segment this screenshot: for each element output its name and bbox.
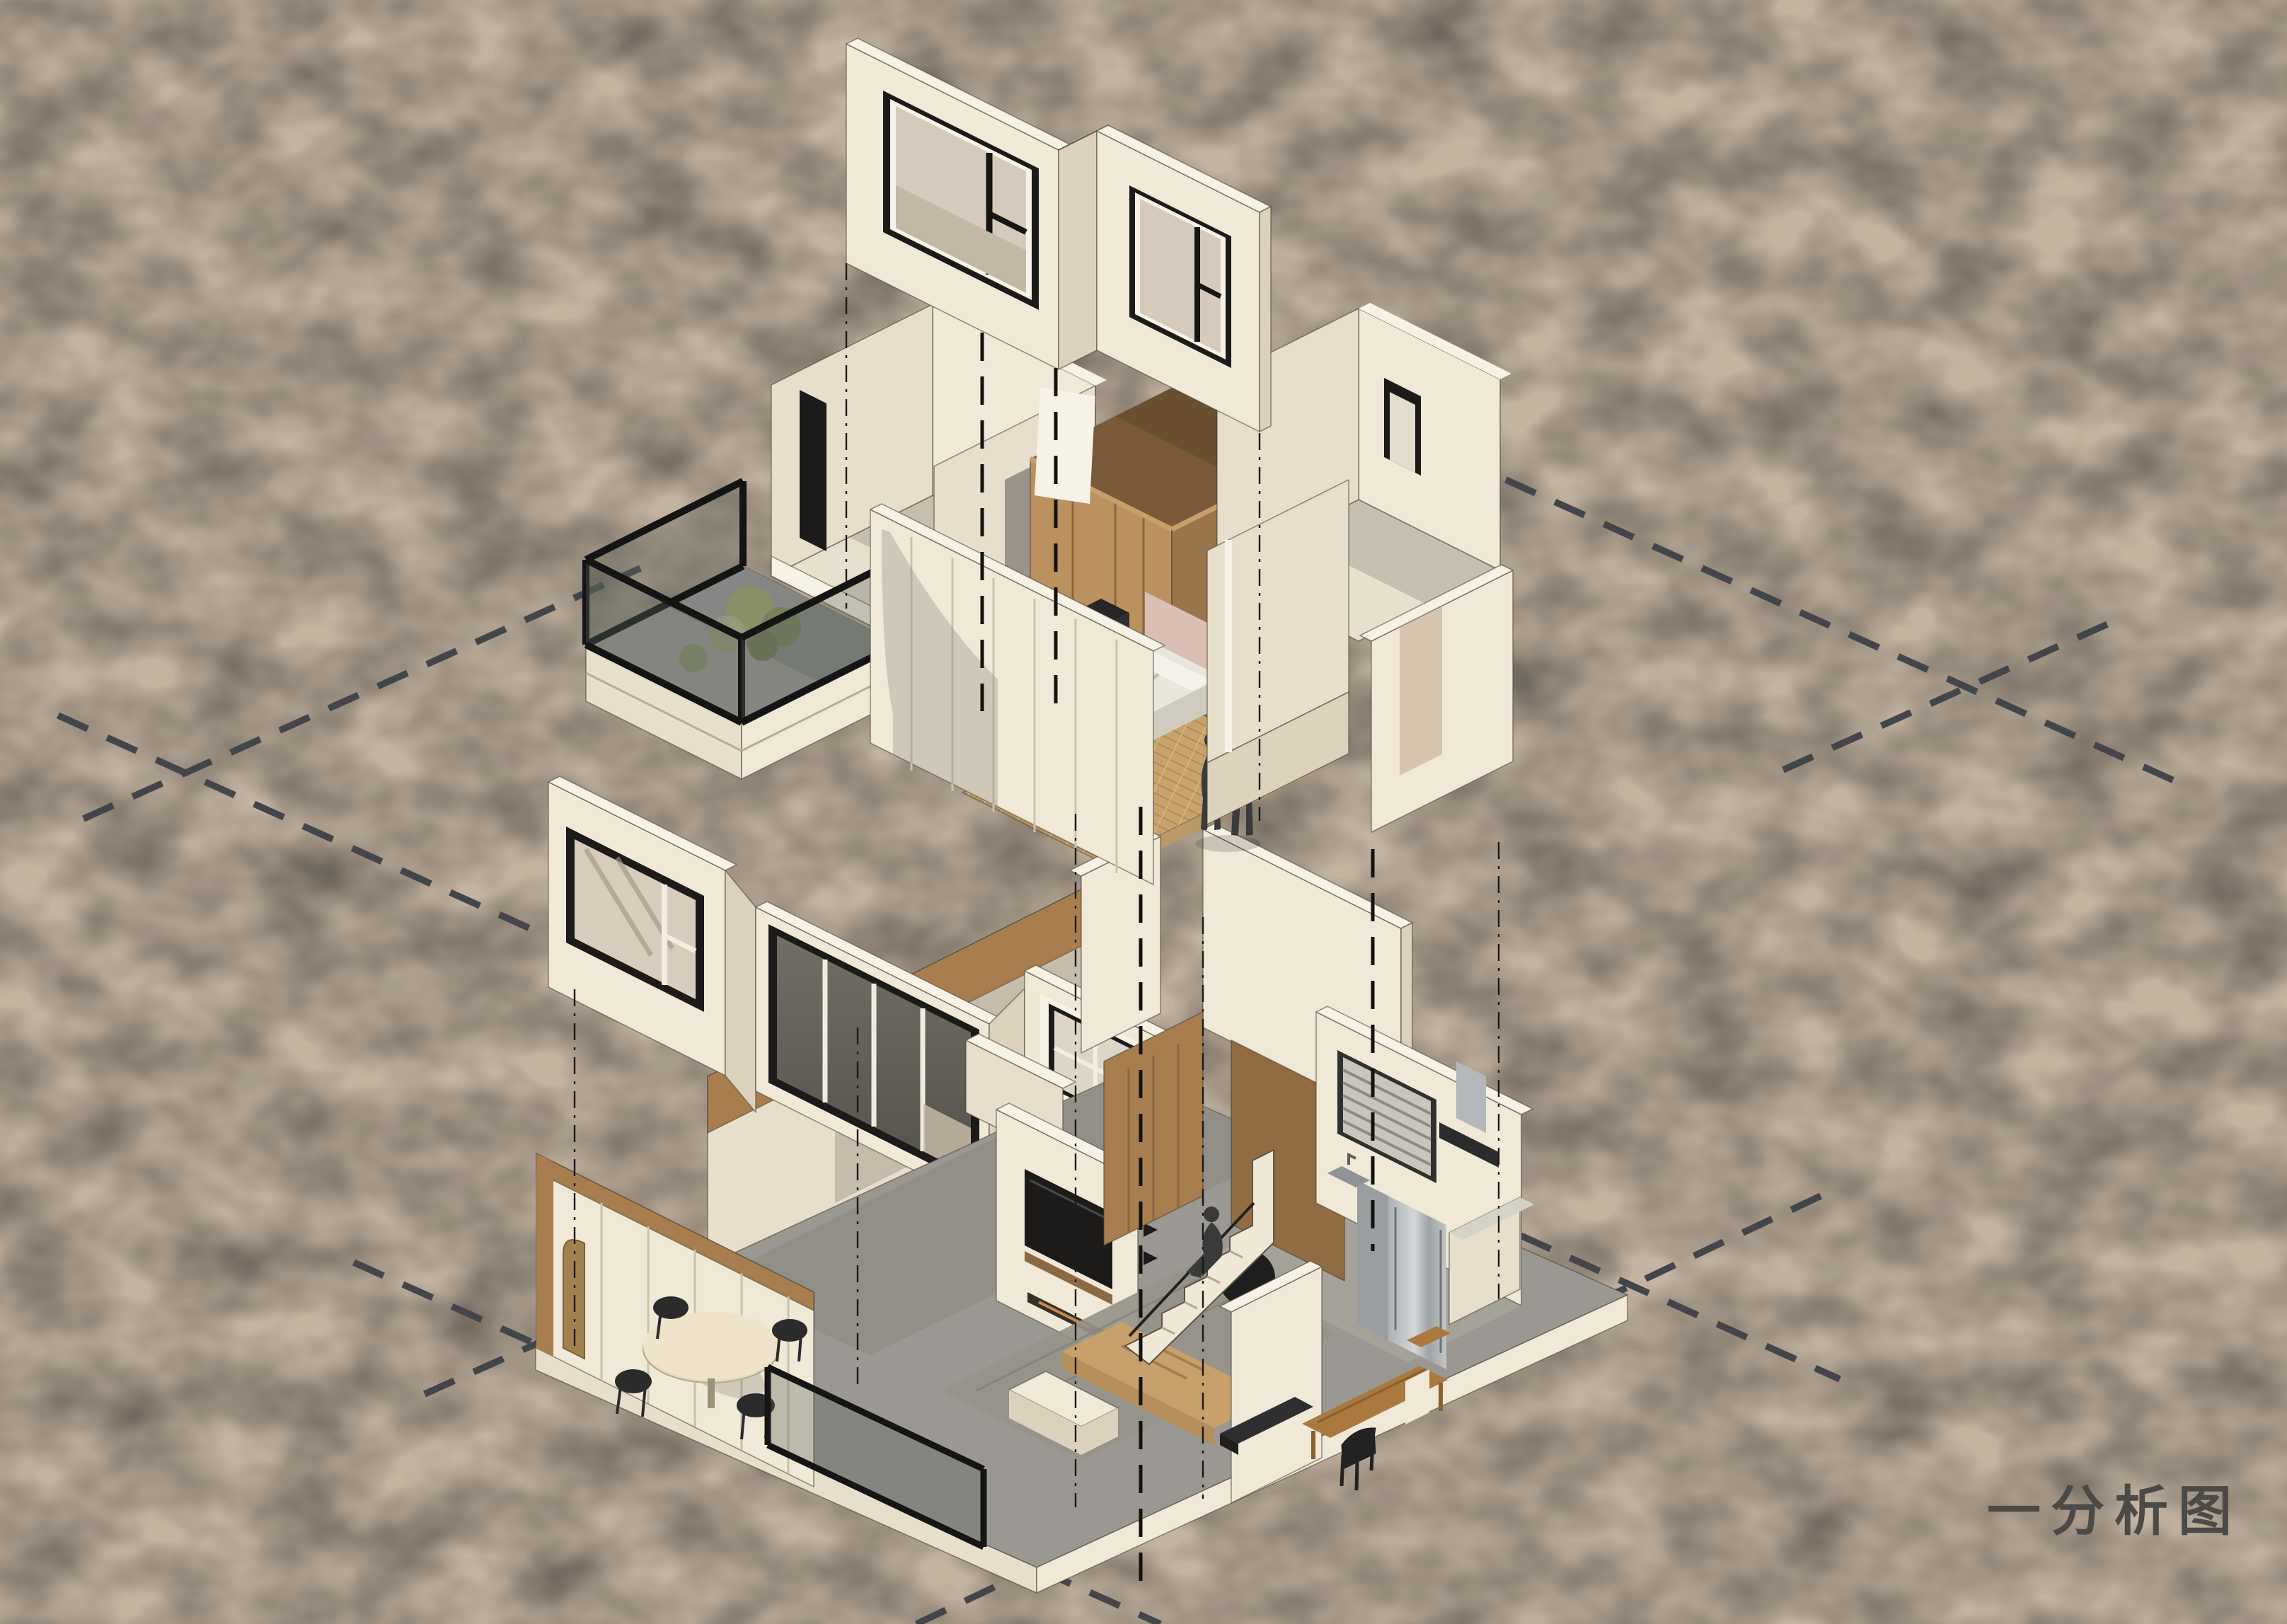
analysis-diagram-canvas: 一分析图 [0,0,2287,1624]
analysis-diagram-page: 一分析图 [0,0,2287,1624]
diagram-title: 一分析图 [1987,1482,2242,1542]
open-door-leaf [1035,388,1095,504]
